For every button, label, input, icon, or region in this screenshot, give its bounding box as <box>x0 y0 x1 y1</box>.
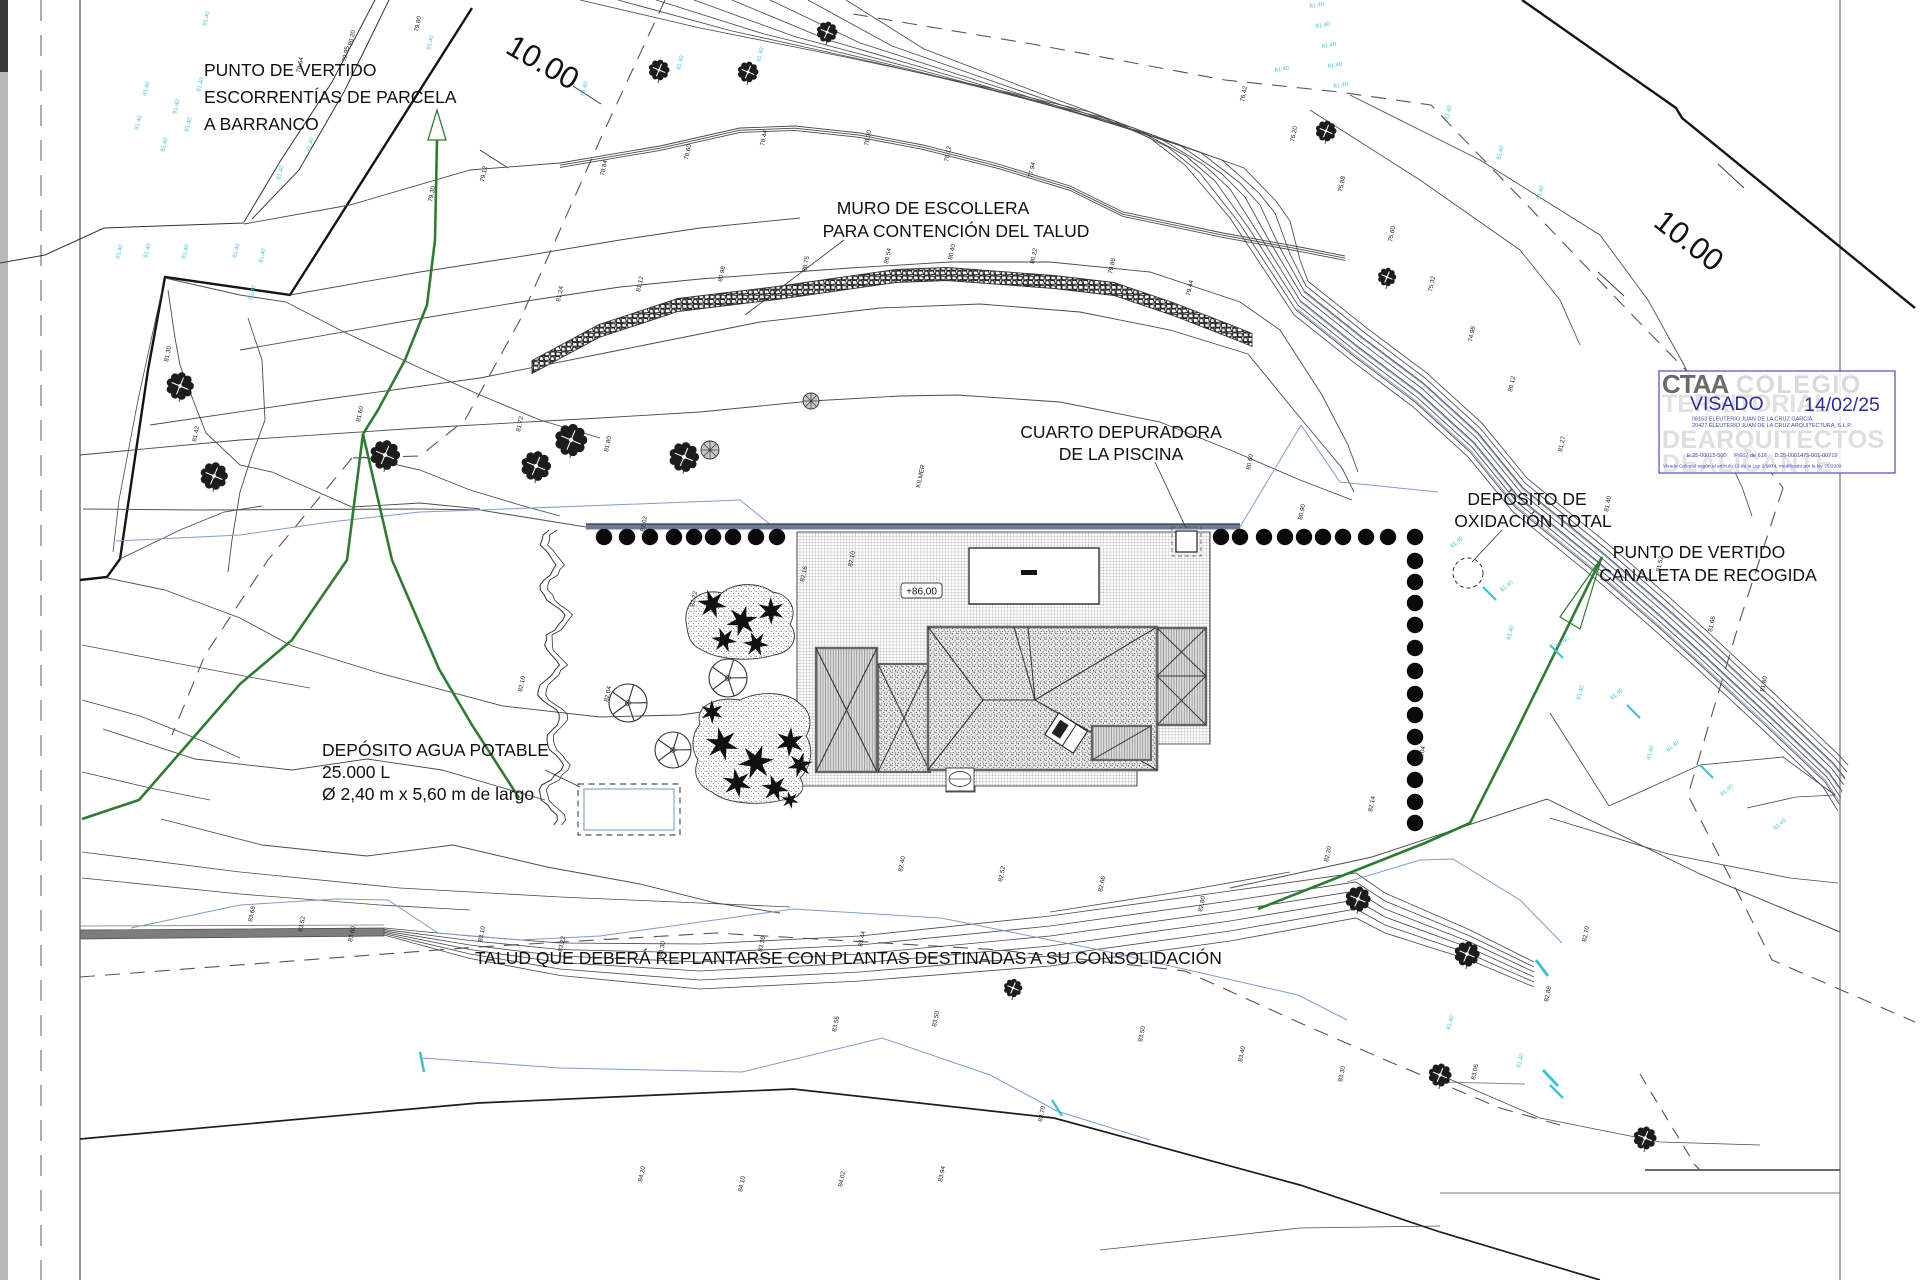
svg-text:TALUD QUE DEBERÁ REPLANTARSE C: TALUD QUE DEBERÁ REPLANTARSE CON PLANTAS… <box>475 947 1222 968</box>
svg-text:PARA CONTENCIÓN DEL TALUD: PARA CONTENCIÓN DEL TALUD <box>823 220 1090 241</box>
svg-text:CANALETA DE RECOGIDA: CANALETA DE RECOGIDA <box>1599 565 1817 585</box>
svg-text:08163 ELEUTERIO JUAN DE LA CRU: 08163 ELEUTERIO JUAN DE LA CRUZ GARCIA <box>1692 417 1813 423</box>
svg-text:VISADO: VISADO <box>1690 393 1764 415</box>
svg-text:MURO DE ESCOLLERA: MURO DE ESCOLLERA <box>837 198 1030 218</box>
svg-text:+86,00: +86,00 <box>906 587 937 598</box>
svg-text:OXIDACIÓN TOTAL: OXIDACIÓN TOTAL <box>1454 510 1612 531</box>
svg-text:DEPÓSITO AGUA POTABLE: DEPÓSITO AGUA POTABLE <box>322 739 549 760</box>
svg-text:14/02/25: 14/02/25 <box>1804 394 1880 416</box>
svg-text:25.000 L: 25.000 L <box>322 762 390 782</box>
svg-text:ESCORRENTÍAS DE PARCELA: ESCORRENTÍAS DE PARCELA <box>204 87 457 107</box>
svg-text:20427 ELEUTERIO JUAN DE LA CRU: 20427 ELEUTERIO JUAN DE LA CRUZ ARQUITEC… <box>1692 423 1852 429</box>
svg-text:PUNTO DE VERTIDO: PUNTO DE VERTIDO <box>204 60 376 80</box>
svg-text:PUNTO DE VERTIDO: PUNTO DE VERTIDO <box>1613 542 1785 562</box>
svg-text:Ø 2,40 m x 5,60 m de largo: Ø 2,40 m x 5,60 m de largo <box>322 784 534 804</box>
svg-text:DEPÓSITO DE: DEPÓSITO DE <box>1467 488 1586 509</box>
svg-text:Visado Colegial según el artíc: Visado Colegial según el artículo 13 de … <box>1663 464 1842 470</box>
svg-text:A BARRANCO: A BARRANCO <box>204 114 319 134</box>
svg-text:CUARTO DEPURADORA: CUARTO DEPURADORA <box>1020 422 1222 442</box>
svg-text:DE LA PISCINA: DE LA PISCINA <box>1059 444 1184 464</box>
svg-text:E:25-00015-500 P:607 de 61: E:25-00015-500 P:607 de 616 D:25-0001475… <box>1687 453 1837 459</box>
